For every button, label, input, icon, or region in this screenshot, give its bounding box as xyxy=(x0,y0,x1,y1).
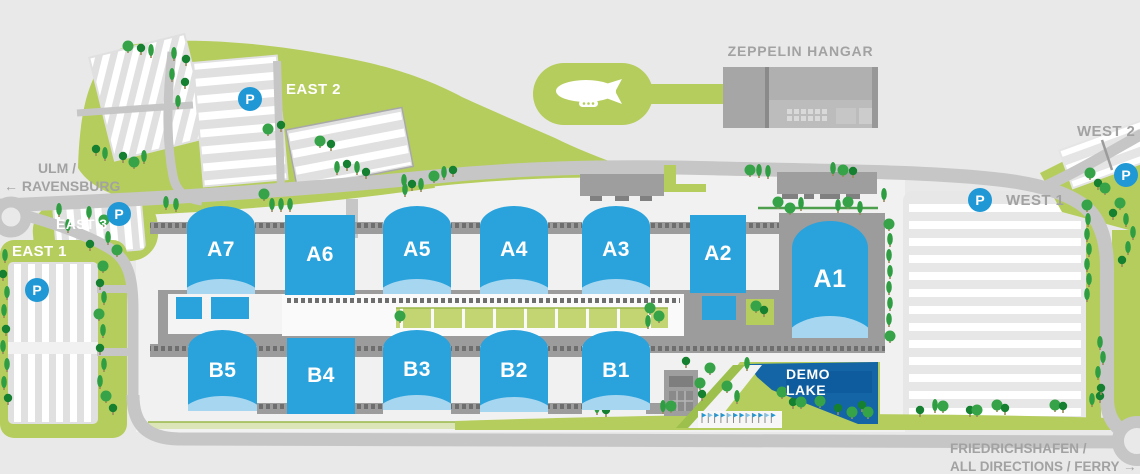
hall-a1[interactable]: A1 xyxy=(792,221,868,338)
sign-ulm-ravensburg: ULM / ← RAVENSBURG xyxy=(4,159,110,196)
hall-entrance-arc xyxy=(582,395,650,410)
parking-badge-east-3[interactable]: P xyxy=(107,202,131,226)
sign-friedrichshafen: FRIEDRICHSHAFEN / ALL DIRECTIONS / FERRY… xyxy=(950,440,1137,474)
hall-entrance-arc xyxy=(480,397,548,412)
hall-a5[interactable]: A5 xyxy=(383,206,451,294)
hall-b3[interactable]: B3 xyxy=(383,330,451,410)
hall-a2[interactable]: A2 xyxy=(690,215,746,293)
hall-a4[interactable]: A4 xyxy=(480,206,548,294)
hall-a7[interactable]: A7 xyxy=(187,206,255,294)
label-demo-lake: DEMO LAKE xyxy=(786,371,872,393)
label-zeppelin-hangar: ZEPPELIN HANGAR xyxy=(723,43,878,59)
hall-entrance-arc xyxy=(188,396,257,411)
parking-lot-west-1 xyxy=(903,191,1087,427)
arrow-left-icon: ← xyxy=(4,178,18,194)
green-band-left xyxy=(148,422,458,429)
map-background xyxy=(0,0,1140,474)
label-east-2: EAST 2 xyxy=(286,81,341,98)
hall-b2[interactable]: B2 xyxy=(480,330,548,412)
parking-badge-east-1[interactable]: P xyxy=(25,278,49,302)
hall-entrance-arc xyxy=(792,316,868,338)
sign-line-2: ← RAVENSBURG xyxy=(4,177,110,195)
hall-b1[interactable]: B1 xyxy=(582,331,650,410)
label-west-1: WEST 1 xyxy=(1006,192,1064,209)
arrow-right-icon: → xyxy=(1123,459,1137,474)
fairground-map: A7 A6 A5 A4 A3 A2 A1 B5 B4 B3 B2 B1 P P … xyxy=(0,0,1140,474)
parking-lot-east-1 xyxy=(0,240,127,438)
label-west-2: WEST 2 xyxy=(1077,123,1135,140)
hall-entrance-arc xyxy=(480,279,548,294)
parking-badge-east-2[interactable]: P xyxy=(238,87,262,111)
hall-entrance-arc xyxy=(582,279,650,294)
sign-line-2: ALL DIRECTIONS / FERRY → xyxy=(950,458,1137,474)
hall-a6[interactable]: A6 xyxy=(285,215,355,295)
parking-badge-west-1[interactable]: P xyxy=(968,188,992,212)
hall-entrance-arc xyxy=(383,395,451,410)
hall-entrance-arc xyxy=(187,279,255,294)
hall-b4[interactable]: B4 xyxy=(287,338,355,414)
zeppelin-hangar-building xyxy=(723,67,878,128)
roundabout-west xyxy=(0,202,26,232)
hall-a3[interactable]: A3 xyxy=(582,206,650,294)
label-east-1: EAST 1 xyxy=(12,243,67,260)
label-east-3: EAST 3 xyxy=(56,216,107,232)
sign-line-1: FRIEDRICHSHAFEN / xyxy=(950,440,1137,458)
hall-b5[interactable]: B5 xyxy=(188,330,257,411)
parking-badge-west-2[interactable]: P xyxy=(1114,163,1138,187)
hall-entrance-arc xyxy=(383,279,451,294)
sign-line-1: ULM / xyxy=(4,159,110,177)
